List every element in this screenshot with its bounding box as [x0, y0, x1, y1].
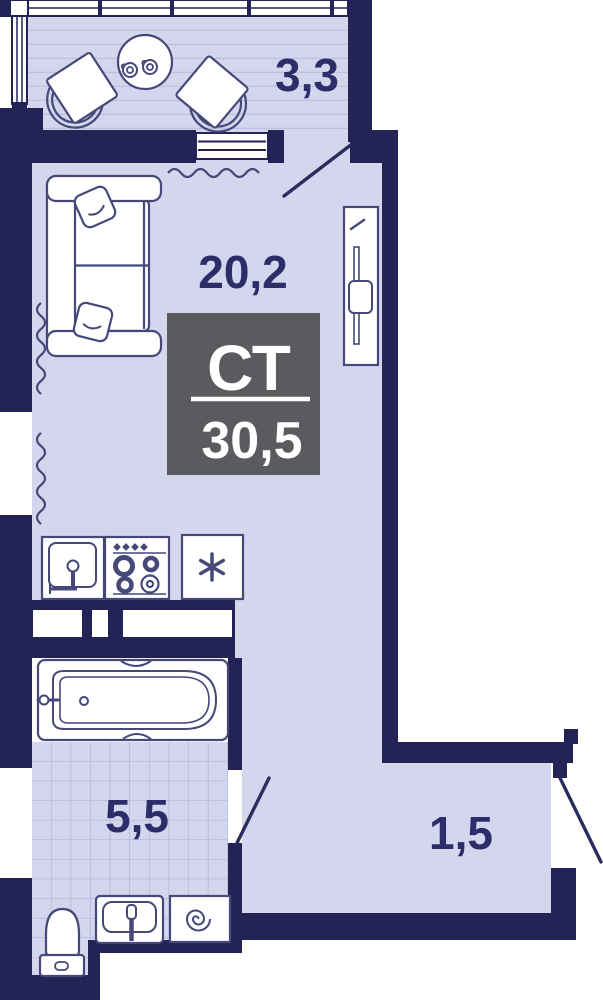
balcony-left-window	[12, 16, 27, 108]
sink-faucet-icon	[127, 905, 136, 919]
living-room-area-label: 20,2	[198, 246, 288, 298]
area-badge: СТ 30,5	[167, 313, 320, 475]
sofa-pillow	[72, 301, 113, 342]
kitchen-sink-unit	[42, 537, 104, 599]
living-room-balcony-window	[196, 133, 268, 159]
stove	[105, 537, 169, 599]
vent-shaft	[123, 610, 232, 637]
cup	[123, 63, 137, 77]
vent-shaft	[92, 610, 108, 637]
vent-shaft	[33, 610, 82, 637]
unit-type-label: СТ	[207, 332, 291, 404]
total-area-label: 30,5	[201, 412, 302, 470]
vent-shafts	[33, 610, 232, 637]
floor-plan: СТ 30,5 3,3 20,2 5,5 1,5	[0, 0, 603, 1000]
fridge	[182, 535, 243, 599]
bathroom-sink	[96, 896, 163, 943]
bathroom-area-label: 5,5	[105, 790, 169, 842]
balcony-top-window	[10, 0, 348, 16]
sofa	[47, 176, 161, 356]
cup	[143, 60, 157, 74]
washing-machine	[170, 896, 230, 942]
kitchen	[42, 535, 243, 599]
toilet-button	[55, 962, 68, 970]
bathtub	[38, 660, 228, 740]
balcony-table	[118, 35, 172, 89]
floor-plan-svg: СТ 30,5 3,3 20,2 5,5 1,5	[0, 0, 603, 1000]
wardrobe	[344, 207, 378, 365]
hallway-area-label: 1,5	[429, 807, 493, 859]
sofa-backrest	[47, 176, 75, 354]
window-corner-post	[10, 0, 28, 16]
balcony-area-label: 3,3	[275, 49, 339, 101]
faucet-icon	[68, 561, 79, 572]
hallway-floor	[242, 742, 551, 913]
wardrobe-hanger	[349, 281, 372, 313]
